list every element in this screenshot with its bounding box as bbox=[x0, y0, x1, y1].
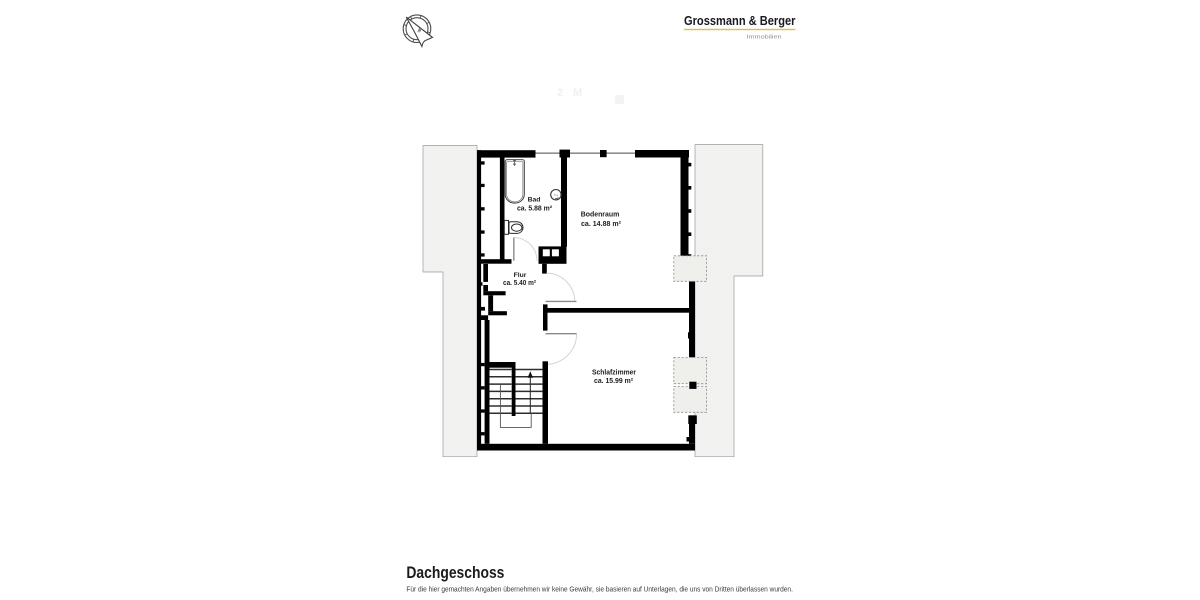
svg-text:ca. 15.99 m²: ca. 15.99 m² bbox=[594, 378, 634, 385]
svg-text:Für die hier gemachten Angaben: Für die hier gemachten Angaben übernehme… bbox=[406, 586, 793, 593]
svg-text:M: M bbox=[573, 87, 582, 99]
svg-text:ca. 5.88 m²: ca. 5.88 m² bbox=[517, 206, 553, 213]
svg-text:Bodenraum: Bodenraum bbox=[581, 210, 620, 219]
svg-text:Flur: Flur bbox=[514, 272, 527, 279]
svg-text:ca. 14.88 m²: ca. 14.88 m² bbox=[581, 221, 622, 228]
svg-text:Immobilien: Immobilien bbox=[747, 35, 782, 41]
svg-text:Bad: Bad bbox=[528, 197, 541, 204]
svg-text:Schlafzimmer: Schlafzimmer bbox=[592, 368, 636, 377]
svg-text:Dachgeschoss: Dachgeschoss bbox=[406, 563, 504, 582]
svg-text:Grossmann & Berger: Grossmann & Berger bbox=[684, 13, 796, 28]
svg-text:ca. 5.40 m²: ca. 5.40 m² bbox=[503, 280, 537, 287]
svg-text:2: 2 bbox=[557, 87, 563, 99]
